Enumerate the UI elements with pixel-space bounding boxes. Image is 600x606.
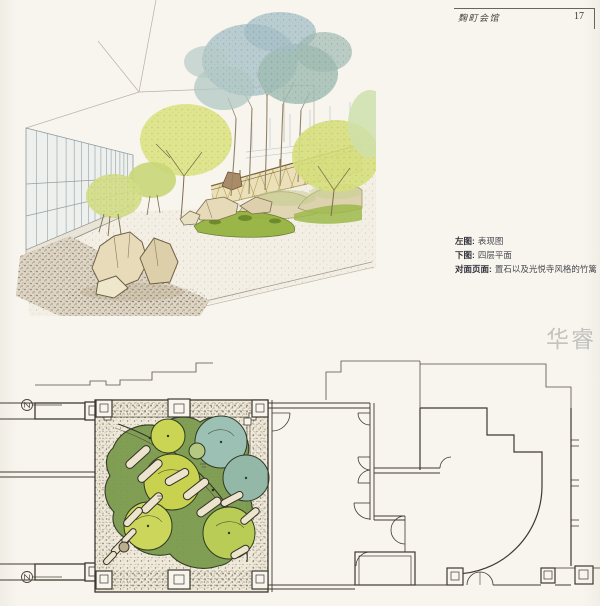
caption-block: 左图:表现图 下图:四层平面 对面页面:置石以及光悦寺风格的竹篱 [455, 234, 597, 276]
book-page-scan: 麹町会馆 17 [0, 0, 600, 606]
right-rooms [268, 400, 600, 592]
garden-perspective-rendering [0, 0, 376, 316]
caption-line-opposite: 对面页面:置石以及光悦寺风格的竹篱 [455, 262, 597, 276]
courtyard-garden [95, 399, 269, 592]
caption-text: 置石以及光悦寺风格的竹篱 [495, 264, 597, 274]
running-title: 麹町会馆 [458, 11, 500, 24]
tall-tree-canopies [184, 12, 352, 110]
fourth-floor-plan [0, 356, 600, 606]
page-number: 17 [574, 11, 584, 22]
left-corridor-walls [0, 402, 102, 581]
caption-label: 左图: [455, 236, 475, 246]
caption-line-below: 下图:四层平面 [455, 248, 597, 262]
caption-label: 下图: [455, 250, 475, 260]
caption-text: 四层平面 [478, 250, 512, 260]
watermark: 华睿 [546, 320, 596, 354]
caption-label: 对面页面: [455, 264, 492, 274]
caption-line-left: 左图:表现图 [455, 234, 597, 248]
caption-text: 表现图 [478, 236, 504, 246]
round-stone-plan [119, 542, 129, 552]
